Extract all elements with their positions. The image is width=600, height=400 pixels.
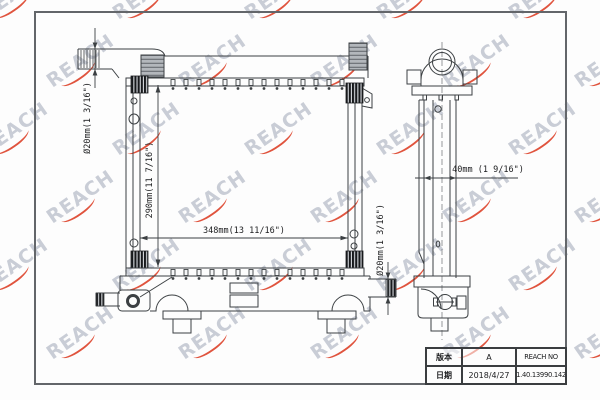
mounting-pads (131, 76, 363, 268)
front-view (78, 43, 396, 333)
title-block-date-label: 日期 (426, 366, 462, 384)
top-flange (126, 78, 364, 89)
dim-inlet-diameter-label: Ø20mm(1 3/16") (82, 82, 93, 154)
dim-core-height-label: 290mm(11 7/16") (145, 142, 155, 219)
outlet-pipe (368, 279, 396, 297)
dim-side-depth-label: 40mm (1 9/16") (452, 165, 524, 175)
inlet-pipe (78, 49, 368, 78)
bottom-tank (118, 276, 370, 333)
drawing-sheet: REACHREACHREACHREACHREACHREACHREACHREACH… (0, 0, 600, 400)
side-brackets (126, 86, 362, 268)
title-block: 版本 A REACH NO 日期 2018/4/27 1.40.13990.14… (425, 347, 567, 385)
title-block-version-value: A (462, 348, 516, 366)
title-block-date-value: 2018/4/27 (462, 366, 516, 384)
side-view (407, 42, 477, 340)
title-block-number-label: REACH NO (516, 348, 566, 366)
title-block-version-label: 版本 (426, 348, 462, 366)
dim-outlet-diameter-label: Ø20mm(1 3/16") (375, 204, 386, 276)
title-block-number-value: 1.40.13990.142 (516, 366, 566, 384)
radiator-drawing: Ø20mm(1 3/16") 290mm(11 7/16") 348mm(13 … (0, 0, 600, 400)
drain-plug (96, 293, 139, 307)
top-right-bracket-hole (365, 98, 370, 103)
side-body (419, 100, 456, 278)
filler-cap-block (141, 55, 164, 77)
dim-core-width-label: 348mm(13 11/16") (203, 226, 285, 236)
top-right-fitting-block (349, 43, 367, 70)
bottom-flange (126, 268, 364, 279)
